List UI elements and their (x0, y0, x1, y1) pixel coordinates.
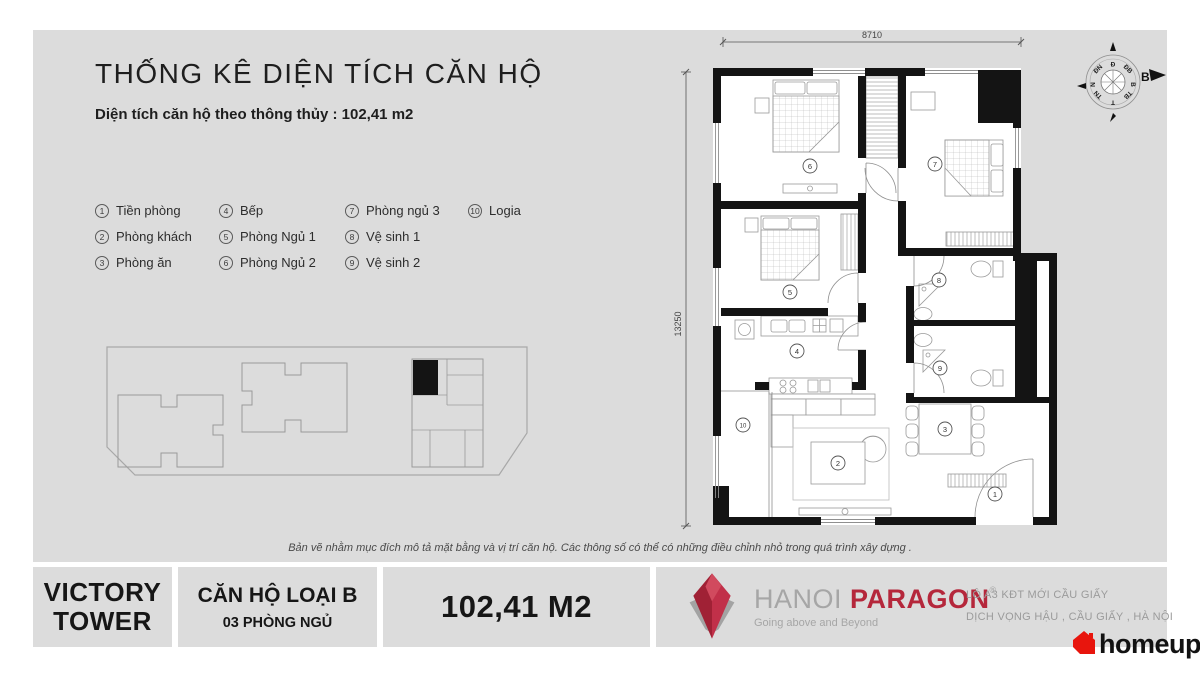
room-legend: 1Tiền phòng 2Phòng khách 3Phòng ăn 4Bếp … (95, 203, 545, 283)
room-number-badge: 6 (219, 256, 233, 270)
unit-block (412, 359, 483, 467)
room-label-10: 10 (736, 418, 750, 432)
room-number-badge: 5 (219, 230, 233, 244)
address-line1: LÔ A3 KĐT MỚI CẦU GIẤY (966, 584, 1173, 606)
room-label-1: 1 (988, 487, 1002, 501)
svg-text:9: 9 (938, 364, 942, 373)
page-subtitle: Diện tích căn hộ theo thông thủy : 102,4… (95, 106, 413, 123)
legend-item: 1Tiền phòng (95, 203, 181, 218)
room-label-5: 5 (783, 285, 797, 299)
site-key-plan (95, 335, 545, 497)
legend-label: Vệ sinh 1 (366, 229, 420, 244)
legend-label: Logia (489, 203, 521, 218)
svg-text:4: 4 (795, 347, 799, 356)
svg-text:3: 3 (943, 425, 947, 434)
room-label-8: 8 (932, 273, 946, 287)
svg-text:ĐN: ĐN (1093, 63, 1105, 75)
room-label-7: 7 (928, 157, 942, 171)
svg-text:ĐB: ĐB (1122, 64, 1134, 76)
homeup-house-icon (1072, 630, 1096, 656)
room-number-badge: 1 (95, 204, 109, 218)
svg-text:7: 7 (933, 160, 937, 169)
footer-area-box: 102,41 M2 (383, 567, 650, 647)
svg-text:10: 10 (740, 424, 747, 430)
dimension-left: 13250 (672, 66, 694, 532)
legend-label: Vệ sinh 2 (366, 255, 420, 270)
brand-tagline: Going above and Beyond (754, 617, 997, 629)
room-label-6: 6 (803, 159, 817, 173)
room-number-badge: 10 (468, 204, 482, 218)
legend-item: 9Vệ sinh 2 (345, 255, 420, 270)
room-label-3: 3 (938, 422, 952, 436)
project-address: LÔ A3 KĐT MỚI CẦU GIẤY DỊCH VỌNG HẬU , C… (966, 584, 1173, 628)
compass-north-label: B (1141, 70, 1150, 84)
apartment-bedrooms: 03 PHÒNG NGỦ (223, 615, 333, 631)
room-number-badge: 9 (345, 256, 359, 270)
legend-item: 4Bếp (219, 203, 263, 218)
dimension-top: 8710 (713, 30, 1057, 48)
legend-item: 5Phòng Ngủ 1 (219, 229, 316, 244)
room-number-badge: 4 (219, 204, 233, 218)
apartment-area: 102,41 M2 (441, 589, 592, 625)
legend-label: Phòng Ngủ 2 (240, 255, 316, 270)
address-line2: DỊCH VỌNG HẬU , CẦU GIẤY , HÀ NỘI (966, 606, 1173, 628)
project-name-line1: VICTORY (44, 577, 162, 607)
compass-rose: B ĐB Đ ĐN N TN T TB B (1063, 30, 1178, 135)
footer-project-box: VICTORY TOWER (33, 567, 172, 647)
room-number-badge: 2 (95, 230, 109, 244)
room-label-9: 9 (933, 361, 947, 375)
homeup-wordmark: homeup (1099, 633, 1200, 656)
page-title: THỐNG KÊ DIỆN TÍCH CĂN HỘ (95, 58, 543, 90)
legend-item: 6Phòng Ngủ 2 (219, 255, 316, 270)
dimension-top-value: 8710 (862, 30, 882, 40)
legend-item: 7Phòng ngủ 3 (345, 203, 440, 218)
legend-item: 8Vệ sinh 1 (345, 229, 420, 244)
svg-text:8: 8 (937, 276, 941, 285)
legend-label: Phòng ngủ 3 (366, 203, 440, 218)
highlighted-unit (413, 360, 438, 395)
room-number-badge: 8 (345, 230, 359, 244)
svg-text:1: 1 (993, 490, 997, 499)
room-label-4: 4 (790, 344, 804, 358)
svg-text:TB: TB (1122, 89, 1133, 100)
svg-text:N: N (1090, 82, 1097, 87)
svg-text:T: T (1111, 99, 1115, 106)
apartment-type: CĂN HỘ LOẠI B (198, 584, 358, 608)
svg-text:2: 2 (836, 459, 840, 468)
svg-text:TN: TN (1093, 89, 1104, 100)
legend-item: 10Logia (468, 203, 521, 218)
dimension-left-value: 13250 (673, 311, 683, 336)
legend-label: Tiền phòng (116, 203, 181, 218)
homeup-logo: homeup (1072, 630, 1200, 656)
room-number-badge: 3 (95, 256, 109, 270)
legend-item: 2Phòng khách (95, 229, 192, 244)
brand-name-first: HANOI (754, 584, 842, 614)
room-number-badge: 7 (345, 204, 359, 218)
legend-label: Phòng khách (116, 229, 192, 244)
svg-text:B: B (1129, 82, 1136, 87)
brand-text: HANOI PARAGON® Going above and Beyond (754, 586, 997, 629)
svg-text:5: 5 (788, 288, 792, 297)
apartment-floor-plan: 1 2 3 4 5 6 7 8 9 10 (713, 68, 1057, 528)
floorplan-brochure: { "header": { "title": "THỐNG KÊ DIỆN TÍ… (0, 0, 1200, 675)
legend-label: Bếp (240, 203, 263, 218)
paragon-diamond-logo (684, 571, 740, 643)
north-arrow-icon (1149, 69, 1166, 81)
svg-text:Đ: Đ (1111, 62, 1116, 69)
disclaimer-note: Bản vẽ nhằm mục đích mô tả mặt bằng và v… (33, 542, 1167, 554)
svg-text:6: 6 (808, 162, 812, 171)
legend-label: Phòng Ngủ 1 (240, 229, 316, 244)
footer-apartment-box: CĂN HỘ LOẠI B 03 PHÒNG NGỦ (178, 567, 377, 647)
legend-label: Phòng ăn (116, 255, 172, 270)
project-name-line2: TOWER (53, 606, 152, 636)
room-label-2: 2 (831, 456, 845, 470)
legend-item: 3Phòng ăn (95, 255, 172, 270)
